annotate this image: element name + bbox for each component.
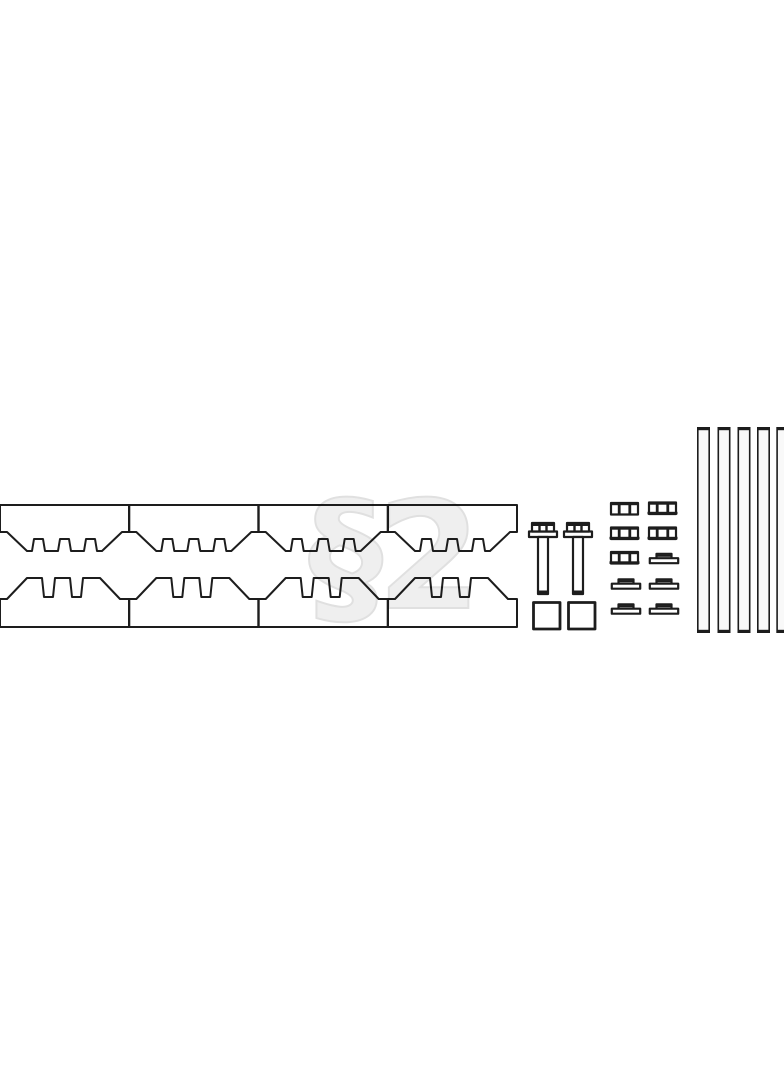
hex-nut-4 (648, 528, 678, 540)
threaded-rods (697, 427, 784, 633)
threaded-rod-4 (757, 427, 769, 633)
upper-cleat-block-1 (0, 505, 129, 551)
hex-nut-2 (648, 503, 678, 515)
square-nut-1 (534, 603, 561, 630)
washer-5 (650, 604, 678, 613)
flange-bolts (529, 523, 592, 594)
hex-nut-3 (610, 528, 640, 540)
lower-cleat-block-1 (0, 578, 129, 627)
washer-3 (650, 579, 678, 588)
hex-nut-1 (611, 503, 638, 515)
square-nuts (534, 603, 596, 630)
hex-nut-5 (610, 552, 640, 564)
flange-bolt-1 (529, 523, 557, 594)
washer-4 (612, 604, 640, 613)
threaded-rod-2 (718, 427, 730, 633)
lower-cleat-block-2 (129, 578, 258, 627)
threaded-rod-3 (738, 427, 750, 633)
watermark-logo: §2 (308, 470, 475, 644)
threaded-rod-5 (777, 427, 784, 633)
washer-2 (612, 579, 640, 588)
square-nut-2 (569, 603, 596, 630)
threaded-rod-1 (697, 427, 709, 633)
washer-1 (650, 554, 678, 563)
diagram-canvas: §2 (0, 0, 784, 1066)
flange-bolt-2 (564, 523, 592, 594)
upper-cleat-block-2 (129, 505, 258, 551)
parts-diagram: §2 (0, 0, 784, 1066)
